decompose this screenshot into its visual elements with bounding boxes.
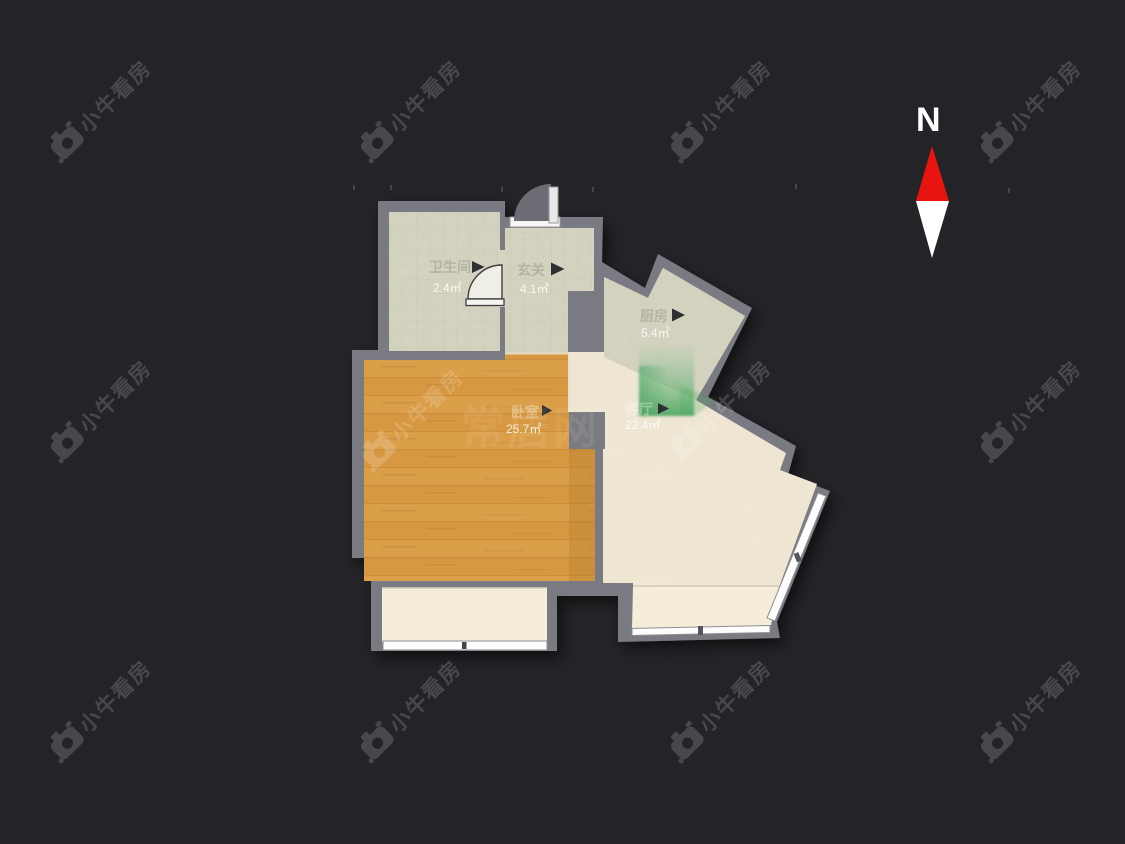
svg-text:N: N: [916, 101, 941, 139]
svg-text:22.4㎡: 22.4㎡: [625, 418, 660, 432]
svg-text:4.1㎡: 4.1㎡: [520, 282, 549, 296]
svg-text:卫生间: 卫生间: [429, 259, 471, 275]
svg-text:客厅: 客厅: [624, 401, 653, 417]
svg-text:2.4㎡: 2.4㎡: [433, 281, 462, 295]
svg-text:厨房: 厨房: [640, 308, 668, 324]
svg-text:玄关: 玄关: [517, 262, 545, 278]
svg-text:5.4㎡: 5.4㎡: [641, 326, 670, 340]
svg-text:常居网: 常居网: [461, 404, 599, 453]
